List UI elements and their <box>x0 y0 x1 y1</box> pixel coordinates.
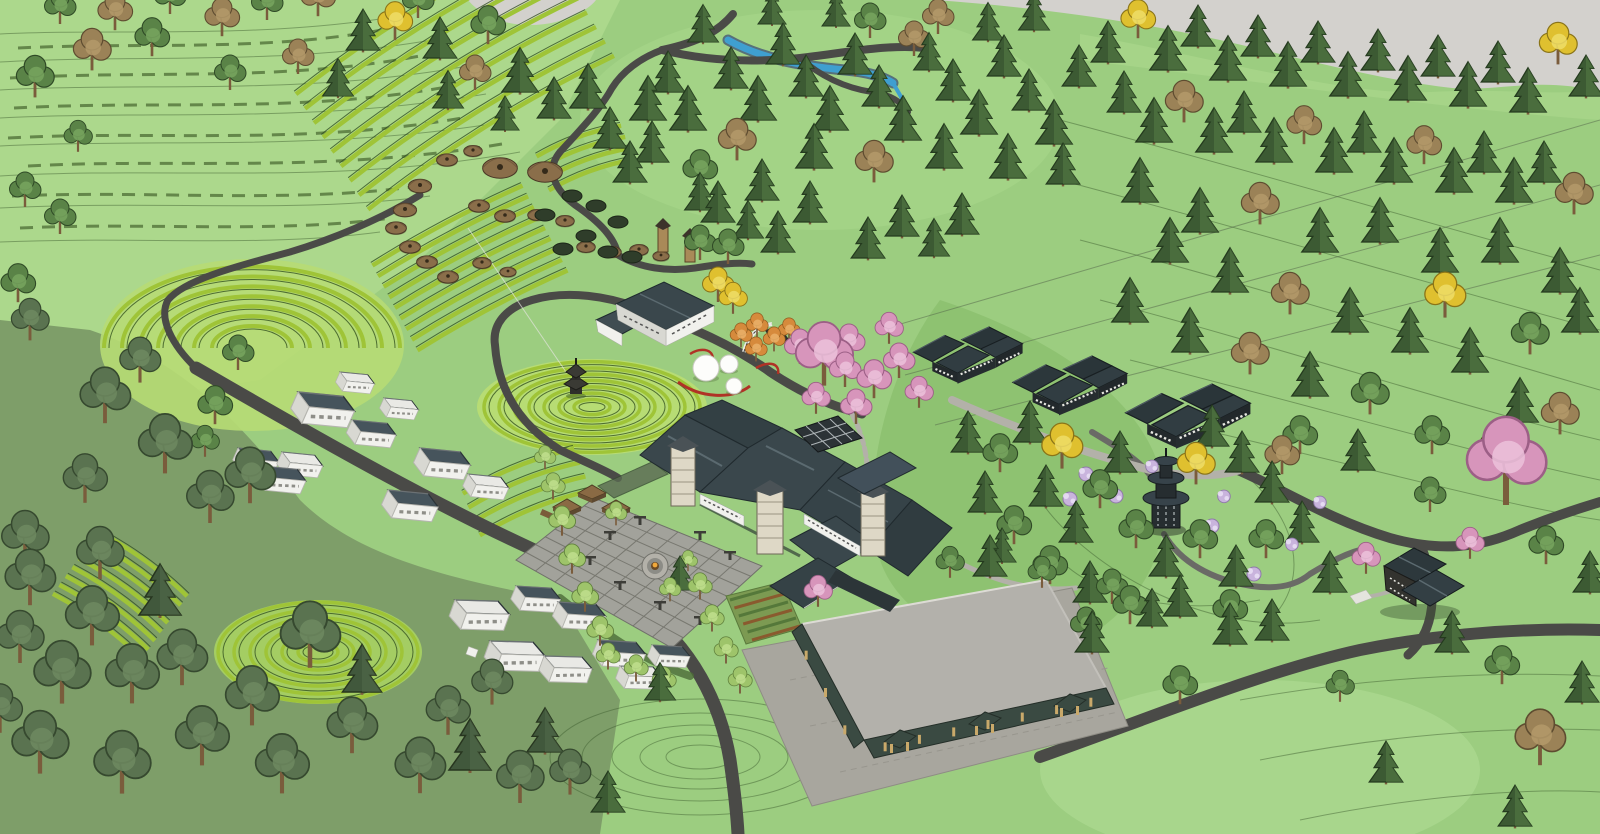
stone-tower-1 <box>667 436 699 506</box>
flowering-shrub <box>1218 490 1231 503</box>
flowering-shrub <box>1146 460 1159 473</box>
dark-shrub <box>608 216 628 228</box>
round-hut <box>393 203 416 217</box>
round-hut <box>438 271 459 284</box>
dark-shrub <box>562 190 582 202</box>
round-hut <box>556 216 575 228</box>
round-hut <box>417 256 438 269</box>
stone-tower-2 <box>753 480 787 554</box>
round-hut <box>500 267 516 278</box>
flowering-shrub <box>1314 496 1327 509</box>
round-hut <box>437 154 458 167</box>
masterplan-rendering <box>0 0 1600 834</box>
round-hut <box>483 158 518 178</box>
dark-shrub <box>598 246 618 258</box>
white-sphere <box>693 355 719 381</box>
dark-shrub <box>553 243 573 255</box>
round-hut <box>469 200 490 213</box>
round-hut <box>577 242 596 254</box>
dark-shrub <box>622 251 642 263</box>
round-hut <box>653 251 669 262</box>
round-hut <box>408 179 431 193</box>
flowering-shrub <box>1286 538 1299 551</box>
round-hut <box>464 146 483 158</box>
round-hut <box>386 222 407 235</box>
round-hut <box>528 162 563 182</box>
dark-shrub <box>576 230 596 242</box>
fire-feature <box>642 553 668 579</box>
white-sphere <box>726 378 742 394</box>
dark-shrub <box>535 209 555 221</box>
round-hut <box>400 241 421 254</box>
round-hut <box>473 258 492 270</box>
round-hut <box>495 210 516 223</box>
flowering-shrub <box>1247 567 1261 581</box>
dark-shrub <box>586 200 606 212</box>
white-sphere <box>720 355 738 373</box>
